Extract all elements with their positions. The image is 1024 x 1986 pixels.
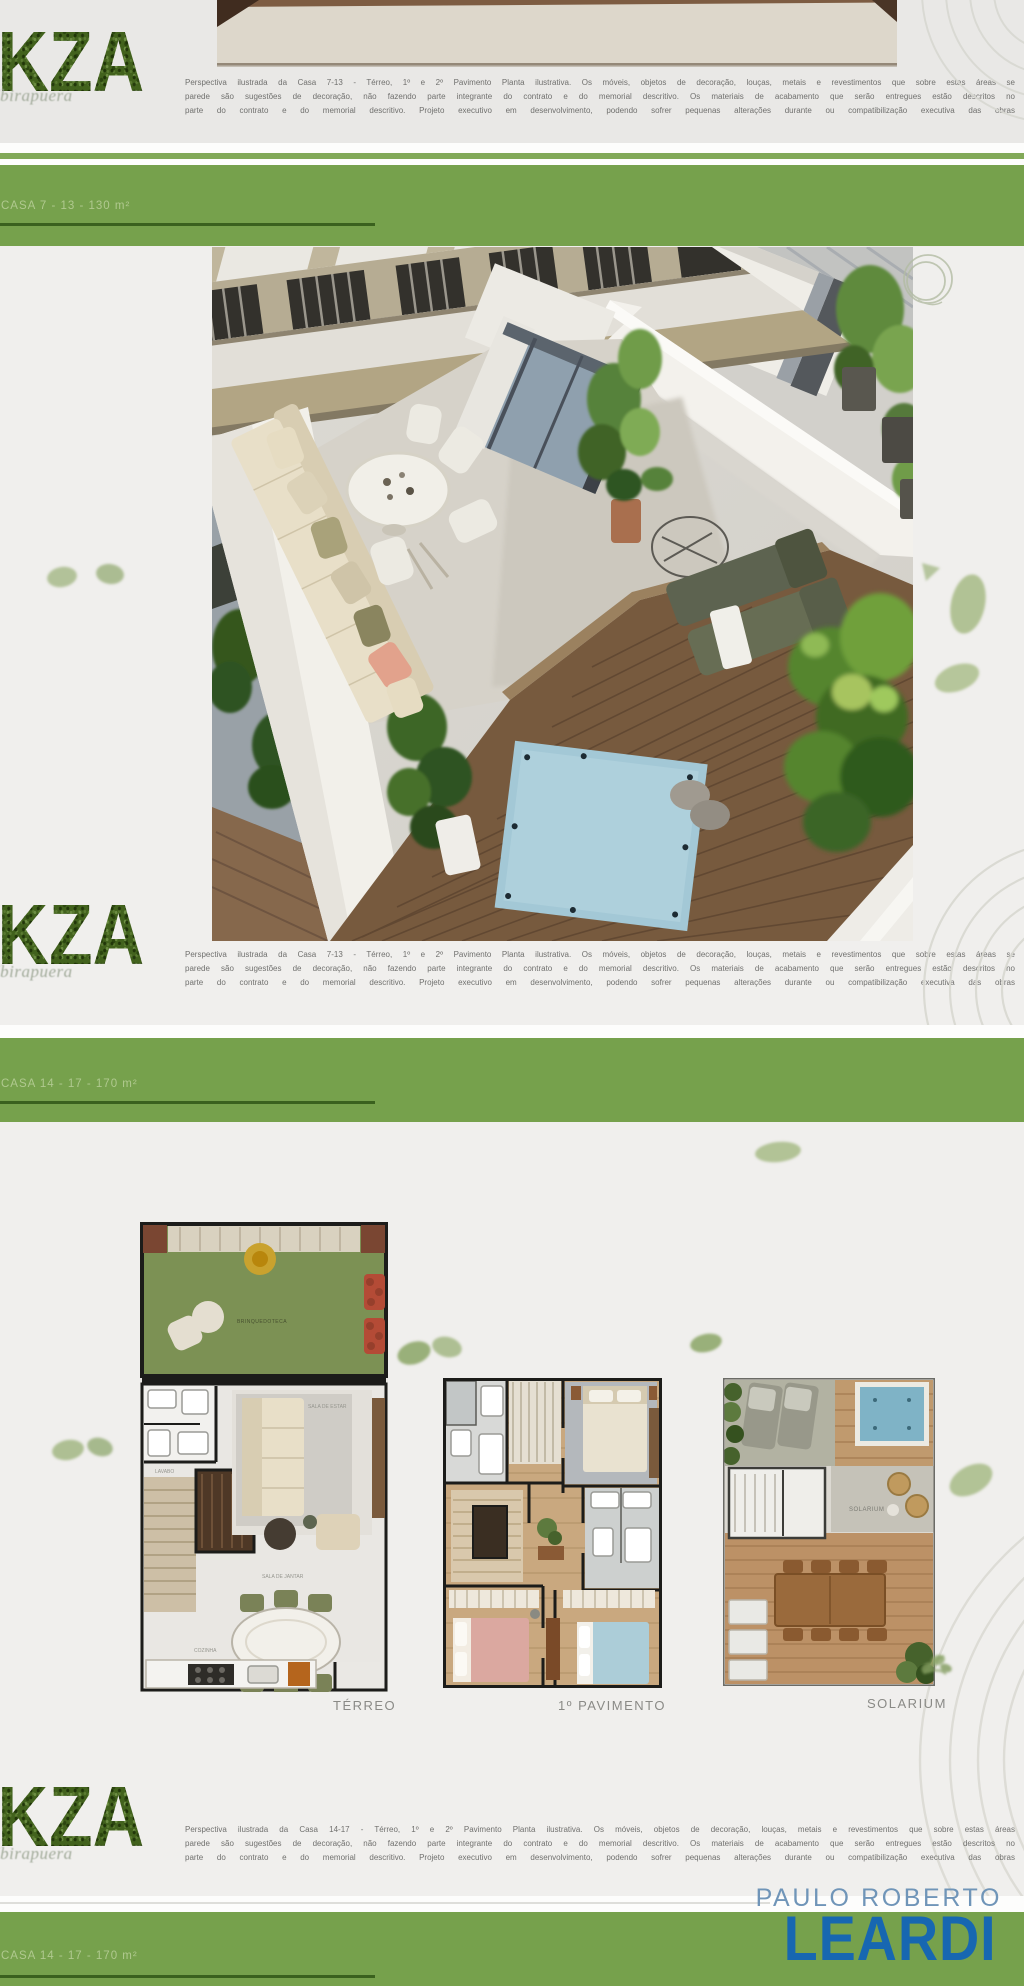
svg-text:BRINQUEDOTECA: BRINQUEDOTECA xyxy=(237,1319,287,1325)
svg-text:LAVABO: LAVABO xyxy=(155,1469,174,1475)
svg-text:SALA DE JANTAR: SALA DE JANTAR xyxy=(262,1574,304,1580)
svg-text:SALA DE ESTAR: SALA DE ESTAR xyxy=(308,1404,347,1410)
svg-text:COZINHA: COZINHA xyxy=(194,1648,217,1654)
svg-text:SOLARIUM: SOLARIUM xyxy=(849,1507,884,1513)
